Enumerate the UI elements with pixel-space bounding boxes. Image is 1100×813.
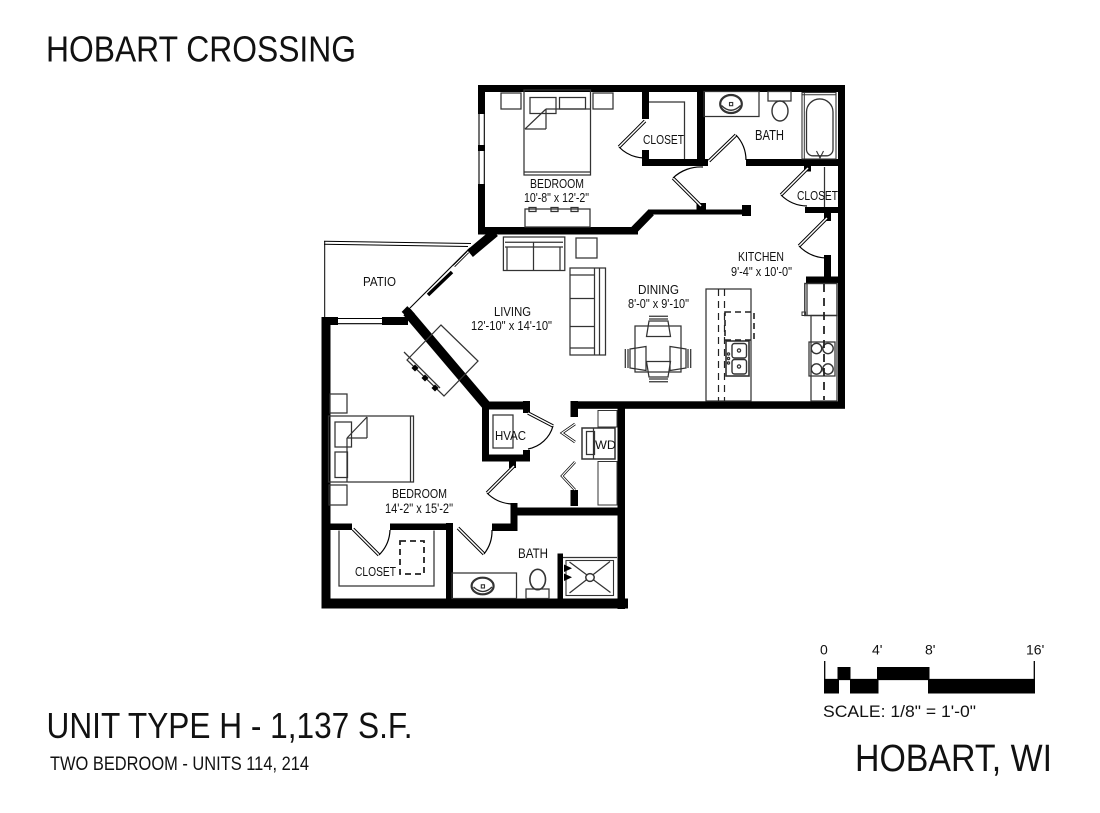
- svg-text:CLOSET: CLOSET: [355, 565, 396, 579]
- svg-text:10'-8" x 12'-2": 10'-8" x 12'-2": [524, 190, 589, 205]
- svg-text:16': 16': [1026, 642, 1044, 658]
- svg-text:LIVING: LIVING: [494, 305, 531, 319]
- svg-text:4': 4': [872, 642, 882, 658]
- svg-text:PATIO: PATIO: [363, 275, 396, 289]
- svg-text:CLOSET: CLOSET: [643, 133, 684, 147]
- svg-text:HVAC: HVAC: [495, 429, 526, 443]
- svg-text:0: 0: [820, 642, 828, 658]
- svg-text:TWO BEDROOM - UNITS 114, 214: TWO BEDROOM - UNITS 114, 214: [50, 754, 309, 775]
- svg-text:UNIT TYPE H - 1,137 S.F.: UNIT TYPE H - 1,137 S.F.: [47, 705, 413, 746]
- svg-text:KITCHEN: KITCHEN: [738, 250, 784, 264]
- svg-text:DINING: DINING: [638, 283, 679, 297]
- svg-text:HOBART CROSSING: HOBART CROSSING: [46, 29, 356, 70]
- svg-text:SCALE: 1/8" = 1'-0": SCALE: 1/8" = 1'-0": [823, 702, 976, 721]
- svg-text:9'-4" x 10'-0": 9'-4" x 10'-0": [731, 264, 792, 279]
- svg-text:WD: WD: [595, 438, 616, 452]
- svg-text:12'-10" x 14'-10": 12'-10" x 14'-10": [471, 318, 552, 333]
- svg-text:CLOSET: CLOSET: [797, 189, 838, 203]
- svg-text:BATH: BATH: [518, 545, 548, 561]
- svg-text:8'-0" x 9'-10": 8'-0" x 9'-10": [628, 296, 689, 311]
- svg-text:BATH: BATH: [755, 128, 784, 144]
- svg-text:HOBART, WI: HOBART, WI: [855, 738, 1052, 780]
- svg-text:BEDROOM: BEDROOM: [392, 487, 447, 501]
- svg-text:14'-2" x 15'-2": 14'-2" x 15'-2": [385, 500, 453, 516]
- svg-text:BEDROOM: BEDROOM: [530, 177, 584, 191]
- svg-text:8': 8': [925, 642, 935, 658]
